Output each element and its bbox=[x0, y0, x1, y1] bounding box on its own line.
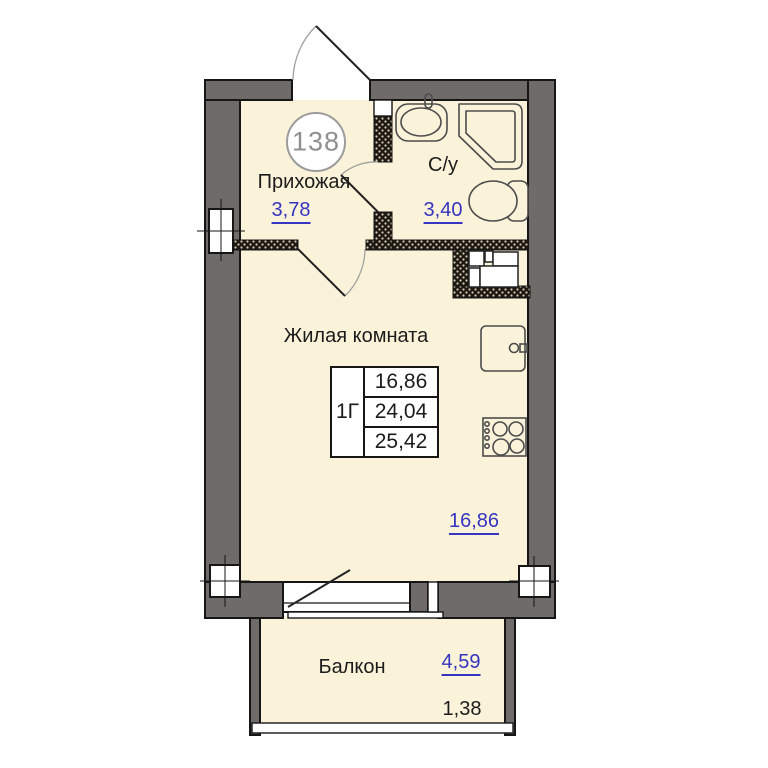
balcony-area-reduced-value: 1,38 bbox=[443, 699, 482, 719]
wardrobe-icon bbox=[469, 251, 518, 287]
left-wall bbox=[205, 80, 240, 618]
right-wall bbox=[528, 80, 555, 618]
living-room-label: Жилая комната bbox=[284, 326, 428, 346]
balcony-label: Балкон bbox=[318, 657, 385, 677]
duct-box bbox=[374, 100, 392, 116]
window-sill bbox=[288, 612, 443, 618]
balcony-right-wall bbox=[505, 618, 515, 735]
bottom-wall-mid bbox=[410, 582, 428, 612]
entrance-door bbox=[293, 26, 370, 80]
narrow-window bbox=[428, 582, 438, 612]
bathroom-label: С/у bbox=[428, 155, 458, 175]
wardrobe-block bbox=[493, 252, 518, 266]
top-wall-left bbox=[205, 80, 292, 100]
entrance-door-leaf bbox=[316, 26, 370, 80]
hall-partition-left bbox=[232, 240, 298, 250]
balcony-left-wall bbox=[250, 618, 260, 735]
hallway-label: Прихожая bbox=[258, 172, 351, 192]
apartment-areas-column: 16,86 24,04 25,42 bbox=[365, 368, 437, 456]
bath-partition-bottom bbox=[374, 212, 392, 250]
apartment-info-table: 1Г 16,86 24,04 25,42 bbox=[330, 366, 439, 458]
table-row-area: 24,04 bbox=[365, 398, 437, 428]
wardrobe-block bbox=[485, 251, 493, 262]
floorplan-canvas: 138 Прихожая 3,78 С/у 3,40 Жилая комната… bbox=[0, 0, 768, 768]
toilet-icon bbox=[469, 181, 528, 221]
balcony-window bbox=[283, 582, 410, 612]
balcony-area-value: 4,59 bbox=[442, 652, 481, 676]
apartment-number: 138 bbox=[292, 129, 340, 156]
hallway-area-value: 3,78 bbox=[272, 200, 311, 224]
bathroom-area-value: 3,40 bbox=[424, 200, 463, 224]
niche-partition-bottom bbox=[453, 286, 530, 298]
table-row-living-area: 16,86 bbox=[365, 368, 437, 398]
apartment-type-label: 1Г bbox=[332, 368, 365, 456]
living-room-area-value: 16,86 bbox=[449, 511, 499, 535]
wardrobe-block bbox=[469, 268, 480, 287]
balcony-railing bbox=[252, 723, 513, 733]
wardrobe-block bbox=[469, 251, 484, 266]
wardrobe-block bbox=[480, 266, 518, 287]
table-row-total-area: 25,42 bbox=[365, 428, 437, 456]
entrance-door-arc bbox=[293, 26, 316, 80]
